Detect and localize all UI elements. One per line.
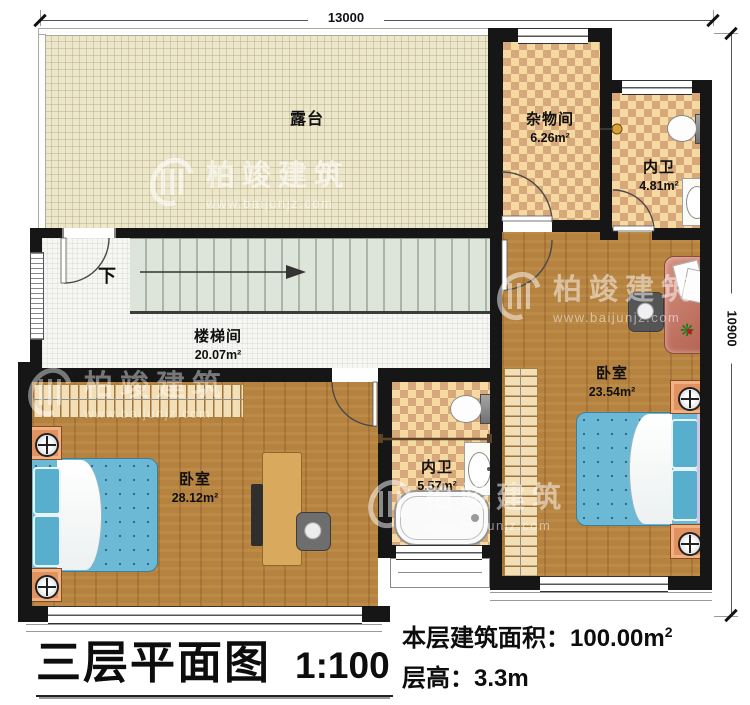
door-opening: [62, 228, 116, 238]
terrace-railing-left: [38, 34, 46, 230]
nightstand: [28, 426, 62, 460]
wall: [488, 28, 518, 42]
lamp-icon: [35, 433, 59, 457]
wall: [18, 368, 332, 382]
pillow: [671, 469, 699, 521]
title-block: 三层平面图 1:100: [36, 626, 393, 697]
wall: [700, 80, 712, 590]
room-name: 露台: [257, 110, 357, 131]
room-area: 20.07m²: [156, 347, 280, 363]
floor-height-row: 层高：3.3m: [402, 664, 673, 694]
bathtub: [394, 490, 490, 546]
wall: [600, 28, 612, 240]
room-label-bedroom-right: 卧室 23.54m²: [558, 364, 666, 400]
wall: [490, 232, 502, 590]
dimension-top-value: 13000: [308, 9, 384, 26]
plan-info: 本层建筑面积：100.00m2 层高：3.3m: [402, 617, 673, 694]
room-area: 23.54m²: [558, 384, 666, 400]
floor-area-value: 100.00m: [570, 625, 665, 652]
room-area: 6.26m²: [500, 130, 600, 146]
dimension-extension: [714, 33, 738, 34]
floor-plan: ❋: [0, 0, 750, 705]
wall: [18, 362, 32, 622]
room-name: 楼梯间: [156, 327, 280, 347]
wall: [490, 576, 540, 590]
pillow: [671, 419, 699, 469]
wardrobe-right-bedroom: [504, 368, 538, 578]
pillow: [33, 467, 61, 515]
wall: [378, 368, 502, 382]
blanket: [629, 414, 672, 524]
terrace-floor: [44, 34, 488, 228]
floor-area-sup: 2: [665, 624, 673, 640]
room-name: 内卫: [614, 158, 704, 178]
room-area: 28.12m²: [133, 490, 257, 506]
wall: [600, 80, 622, 93]
window: [396, 545, 482, 560]
blanket: [57, 460, 102, 570]
wall: [18, 606, 48, 622]
dimension-right-value: 10900: [724, 294, 741, 364]
wardrobe-left-bedroom: [32, 384, 244, 418]
wall: [668, 576, 712, 590]
office-chair: [628, 292, 664, 332]
plant-icon: ❋: [680, 322, 694, 339]
room-name: 内卫: [394, 458, 480, 478]
room-name: 卧室: [558, 364, 666, 384]
lamp-icon: [678, 387, 702, 411]
lamp-icon: [678, 532, 702, 556]
wall: [30, 228, 42, 252]
stairs: [130, 238, 490, 314]
floor-area-row: 本层建筑面积：100.00m2: [402, 617, 673, 654]
wall: [112, 228, 497, 238]
bed-right-bedroom: [576, 412, 704, 526]
room-label-storage: 杂物间 6.26m²: [500, 110, 600, 146]
room-name: 杂物间: [500, 110, 600, 130]
room-label-bath-top: 内卫 4.81m²: [614, 158, 704, 194]
wall: [378, 382, 392, 558]
window: [30, 252, 44, 340]
wall: [378, 545, 396, 558]
window: [518, 28, 588, 44]
toilet: [448, 392, 492, 424]
floor-area-label: 本层建筑面积：: [402, 625, 570, 652]
desk-left-bedroom: [262, 452, 302, 566]
plan-title: 三层平面图: [36, 626, 271, 691]
room-label-stairwell: 楼梯间 20.07m²: [156, 327, 280, 363]
terrace-railing-top: [38, 28, 490, 36]
window: [48, 606, 362, 624]
wall: [652, 228, 700, 240]
room-label-bedroom-left: 卧室 28.12m²: [133, 470, 257, 506]
window: [540, 576, 668, 592]
wall: [612, 228, 618, 240]
lamp-icon: [35, 575, 59, 599]
bay-window: [390, 558, 490, 588]
desk-chair: [296, 512, 331, 551]
room-label-terrace: 露台: [257, 110, 357, 131]
nightstand: [28, 568, 62, 602]
wall: [362, 606, 390, 622]
plan-scale: 1:100: [295, 645, 390, 687]
stairs-down-label: 下: [98, 262, 116, 288]
window-sill: [490, 592, 712, 601]
pillow: [33, 515, 61, 567]
room-area: 4.81m²: [614, 178, 704, 194]
room-label-bath-mid: 内卫 5.57m²: [394, 458, 480, 494]
room-name: 卧室: [133, 470, 257, 490]
room-area: 5.57m²: [394, 478, 480, 494]
window: [622, 80, 692, 95]
